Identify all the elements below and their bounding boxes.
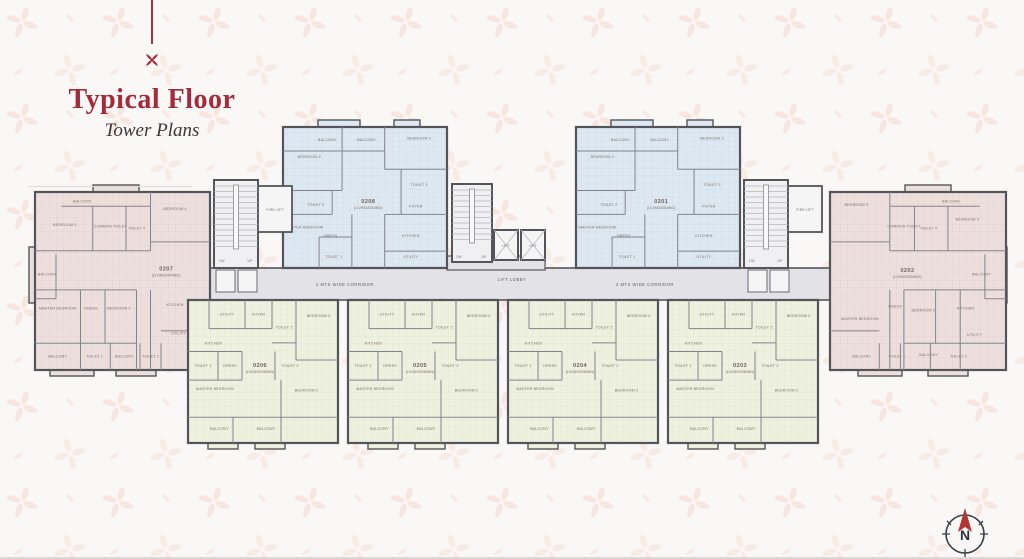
room-label: BALCONY bbox=[650, 138, 669, 142]
room-label: BALCONY bbox=[357, 138, 376, 142]
room-label: MASTER BEDROOM bbox=[39, 306, 77, 310]
room-label: BEDROOM 3 bbox=[307, 314, 330, 318]
room-label: MASTER BEDROOM bbox=[676, 387, 714, 391]
room-label: KITCHEN bbox=[695, 234, 712, 238]
room-label: TOILET 4 bbox=[128, 226, 145, 230]
room-label: BEDROOM 2 bbox=[455, 389, 478, 393]
room-label: BALCONY bbox=[737, 427, 756, 431]
fire-lift-label: FIRE LIFT bbox=[796, 208, 813, 212]
unit-number-label: 0206 bbox=[253, 363, 267, 369]
room-label: DRESS bbox=[84, 306, 98, 310]
lift-shaft-2: LIFT bbox=[521, 230, 545, 260]
room-label: TOILET 1 bbox=[674, 364, 691, 368]
unit-number-label: 0203 bbox=[733, 363, 747, 369]
room-label: BALCONY bbox=[690, 427, 709, 431]
room-label: BALCONY bbox=[417, 427, 436, 431]
room-label: UTILITY bbox=[540, 313, 555, 317]
room-label: TOILET 1 bbox=[888, 355, 905, 359]
room-label: TOILET 2 bbox=[601, 364, 618, 368]
room-label: FOYER bbox=[252, 313, 266, 317]
room-label: COMMON TOILET bbox=[887, 225, 921, 229]
room-label: DRESS bbox=[617, 234, 631, 238]
room-label: BEDROOM 3 bbox=[407, 137, 430, 141]
unit-0203-plan: UTILITYFOYERTOILET 3BEDROOM 3KITCHENTOIL… bbox=[668, 300, 818, 443]
room-label: BEDROOM 2 bbox=[295, 389, 318, 393]
room-label: UTILITY bbox=[700, 313, 715, 317]
room-label: BALCONY bbox=[611, 138, 630, 142]
room-label: TOILET 2 bbox=[441, 364, 458, 368]
room-label: TOILET 1 bbox=[618, 255, 635, 259]
room-label: TOILET 1 bbox=[354, 364, 371, 368]
room-label: BEDROOM 4 bbox=[956, 217, 979, 221]
unit-number-label: 0204 bbox=[573, 363, 588, 369]
room-label: TOILET 2 bbox=[307, 203, 324, 207]
room-label: COMMON TOILET bbox=[94, 225, 128, 229]
room-label: TOILET 3 bbox=[411, 183, 428, 187]
room-label: TOILET 1 bbox=[325, 255, 342, 259]
room-label: TOILET 3 bbox=[704, 183, 721, 187]
room-label: MASTER BEDROOM bbox=[841, 317, 879, 321]
room-label: UTILITY bbox=[967, 333, 982, 337]
room-label: FOYER bbox=[702, 204, 716, 208]
room-label: BEDROOM 3 bbox=[700, 137, 723, 141]
room-label: KITCHEN bbox=[685, 341, 702, 345]
up-label: UP bbox=[247, 259, 253, 263]
room-label: DRESS bbox=[223, 364, 237, 368]
room-label: BEDROOM 2 bbox=[297, 155, 320, 159]
stair-stringer bbox=[470, 189, 475, 243]
room-label: BALCONY bbox=[210, 427, 229, 431]
room-label: KITCHEN bbox=[525, 341, 542, 345]
room-label: BEDROOM 3 bbox=[53, 223, 76, 227]
room-label: BEDROOM 3 bbox=[845, 203, 868, 207]
room-label: TOILET 1 bbox=[514, 364, 531, 368]
room-label: BEDROOM 2 bbox=[615, 389, 638, 393]
unit-0206-plan: UTILITYFOYERTOILET 3BEDROOM 3KITCHENTOIL… bbox=[188, 300, 338, 443]
center-lift-core: DN UP LIFT LIFT bbox=[452, 184, 545, 262]
room-label: BALCONY bbox=[919, 353, 938, 357]
unit-0201-plan: BALCONYBALCONYBEDROOM 3BEDROOM 2TOILET 3… bbox=[576, 127, 740, 268]
room-label: KITCHEN bbox=[166, 303, 183, 307]
room-label: MASTER BEDROOM bbox=[516, 387, 554, 391]
room-label: KITCHEN bbox=[402, 234, 419, 238]
room-label: TOILET 2 bbox=[761, 364, 778, 368]
room-label: TOILET 2 bbox=[950, 355, 967, 359]
room-label: FOYER bbox=[412, 313, 426, 317]
room-label: UTILITY bbox=[697, 255, 712, 259]
room-label: TOILET 1 bbox=[194, 364, 211, 368]
room-label: TOILET 2 bbox=[281, 364, 298, 368]
room-label: BALCONY bbox=[38, 273, 57, 277]
room-label: MASTER BEDROOM bbox=[196, 387, 234, 391]
unit-0205-plan: UTILITYFOYERTOILET 3BEDROOM 3KITCHENTOIL… bbox=[348, 300, 498, 443]
room-label: KITCHEN bbox=[957, 306, 974, 310]
lift-shaft-1: LIFT bbox=[494, 230, 518, 260]
unit-number-label: 0201 bbox=[654, 199, 668, 205]
unit-suffix-label: (LIVING/DINING) bbox=[893, 275, 921, 279]
compass-n-label: N bbox=[960, 527, 970, 543]
unit-number-label: 0202 bbox=[900, 268, 914, 274]
room-label: MASTER BEDROOM bbox=[579, 226, 617, 230]
room-label: BEDROOM 3 bbox=[627, 314, 650, 318]
stair-stringer bbox=[234, 185, 239, 249]
stair-stringer bbox=[764, 185, 769, 249]
room-label: BALCONY bbox=[577, 427, 596, 431]
unit-0208-plan: BALCONYBALCONYBEDROOM 3BEDROOM 2TOILET 3… bbox=[283, 127, 447, 268]
up-label: UP bbox=[481, 255, 487, 259]
unit-0204-plan: UTILITYFOYERTOILET 3BEDROOM 3KITCHENTOIL… bbox=[508, 300, 658, 443]
unit-suffix-label: (LIVING/DINING) bbox=[152, 273, 180, 277]
dn-label: DN bbox=[456, 255, 462, 259]
room-label: BALCONY bbox=[318, 138, 337, 142]
room-label: TOILET 3 bbox=[435, 326, 452, 330]
dn-label: DN bbox=[749, 259, 755, 263]
room-label: MASTER BEDROOM bbox=[356, 387, 394, 391]
unit-number-label: 0207 bbox=[159, 266, 173, 272]
room-label: BEDROOM 3 bbox=[787, 314, 810, 318]
room-label: KITCHEN bbox=[205, 341, 222, 345]
page-title: Typical Floor bbox=[42, 84, 262, 116]
room-label: UTILITY bbox=[404, 255, 419, 259]
unit-suffix-label: (LIVING/DINING) bbox=[354, 206, 382, 210]
room-label: DRESS bbox=[703, 364, 717, 368]
room-label: BALCONY bbox=[972, 273, 991, 277]
room-label: BEDROOM 2 bbox=[775, 389, 798, 393]
room-label: FOYER bbox=[732, 313, 746, 317]
room-label: UTILITY bbox=[220, 313, 235, 317]
room-label: TOILET 4 bbox=[920, 226, 937, 230]
room-label: DRESS bbox=[888, 305, 902, 309]
unit-number-label: 0205 bbox=[413, 363, 427, 369]
dn-label: DN bbox=[219, 259, 225, 263]
page-subtitle: Tower Plans bbox=[42, 120, 262, 142]
up-label: UP bbox=[777, 259, 783, 263]
room-label: BEDROOM 2 bbox=[107, 306, 130, 310]
fire-lift-label: FIRE LIFT bbox=[266, 208, 283, 212]
unit-suffix-label: (LIVING/DINING) bbox=[406, 370, 434, 374]
room-label: DRESS bbox=[324, 234, 338, 238]
room-label: BEDROOM 4 bbox=[163, 207, 186, 211]
unit-number-label: 0208 bbox=[361, 199, 375, 205]
unit-0202-plan: BEDROOM 3BALCONYCOMMON TOILETTOILET 4BED… bbox=[830, 192, 1006, 370]
room-label: UTILITY bbox=[380, 313, 395, 317]
room-label: DRESS bbox=[543, 364, 557, 368]
unit-suffix-label: (LIVING/DINING) bbox=[246, 370, 274, 374]
unit-suffix-label: (LIVING/DINING) bbox=[566, 370, 594, 374]
north-compass-icon: N bbox=[942, 508, 988, 557]
room-label: FOYER bbox=[572, 313, 586, 317]
room-label: BEDROOM 2 bbox=[590, 155, 613, 159]
lift-label: LIFT bbox=[502, 244, 510, 248]
corridor-label-right: 2 MTS WIDE CORRIDOR bbox=[616, 282, 674, 287]
floral-x-ornament-icon bbox=[144, 53, 160, 69]
room-label: BEDROOM 2 bbox=[912, 308, 935, 312]
lift-lobby-label: LIFT LOBBY bbox=[498, 277, 527, 282]
room-label: UTILITY bbox=[171, 331, 186, 335]
room-label: TOILET 3 bbox=[275, 326, 292, 330]
header-accent-rule bbox=[151, 0, 153, 44]
room-label: BALCONY bbox=[942, 200, 961, 204]
room-label: DRESS bbox=[383, 364, 397, 368]
title-block: Typical Floor Tower Plans bbox=[42, 84, 262, 142]
unit-suffix-label: (LIVING/DINING) bbox=[647, 206, 675, 210]
room-label: BALCONY bbox=[257, 427, 276, 431]
title-divider bbox=[28, 186, 192, 187]
room-label: TOILET 1 bbox=[86, 355, 103, 359]
unit-0207-plan: BALCONYBEDROOM 3COMMON TOILETTOILET 4BED… bbox=[35, 192, 210, 370]
room-label: BALCONY bbox=[370, 427, 389, 431]
room-label: KITCHEN bbox=[365, 341, 382, 345]
room-label: TOILET 3 bbox=[755, 326, 772, 330]
lift-label: LIFT bbox=[529, 244, 537, 248]
unit-suffix-label: (LIVING/DINING) bbox=[726, 370, 754, 374]
room-label: FOYER bbox=[409, 204, 423, 208]
room-label: BALCONY bbox=[115, 355, 134, 359]
room-label: TOILET 2 bbox=[142, 355, 159, 359]
corridor-label-left: 2 MTS WIDE CORRIDOR bbox=[316, 282, 374, 287]
room-label: BEDROOM 3 bbox=[467, 314, 490, 318]
room-label: BALCONY bbox=[852, 355, 871, 359]
room-label: TOILET 2 bbox=[600, 203, 617, 207]
room-label: BALCONY bbox=[48, 355, 67, 359]
room-label: TOILET 3 bbox=[595, 326, 612, 330]
room-label: BALCONY bbox=[530, 427, 549, 431]
room-label: BALCONY bbox=[73, 200, 92, 204]
